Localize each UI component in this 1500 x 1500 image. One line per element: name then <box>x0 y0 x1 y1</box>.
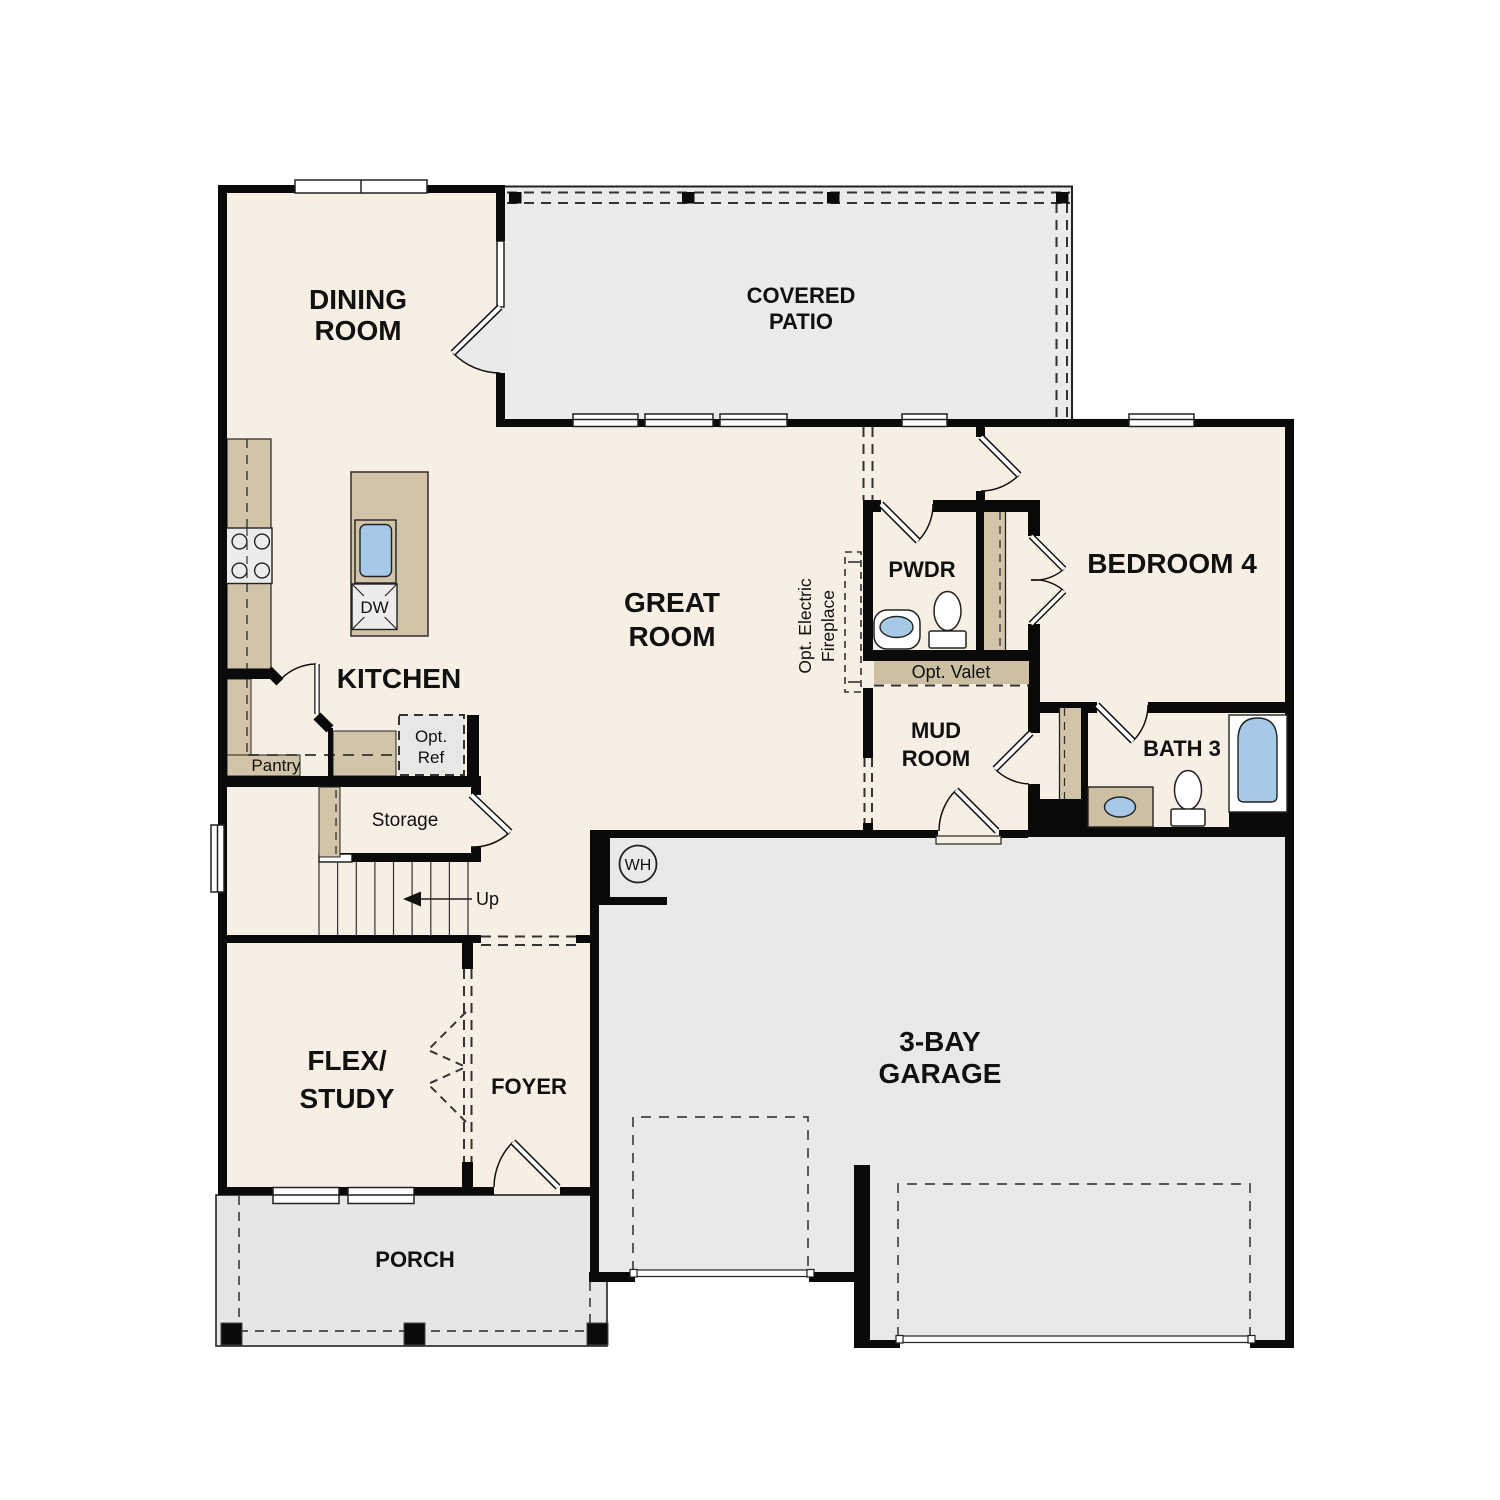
svg-text:Pantry: Pantry <box>251 756 301 775</box>
svg-text:PORCH: PORCH <box>375 1247 454 1272</box>
svg-text:PATIO: PATIO <box>769 309 833 334</box>
svg-text:DW: DW <box>360 598 388 617</box>
svg-text:BATH 3: BATH 3 <box>1143 736 1221 761</box>
svg-text:3-BAY: 3-BAY <box>899 1026 981 1057</box>
svg-text:Ref: Ref <box>418 748 445 767</box>
svg-text:FOYER: FOYER <box>491 1074 567 1099</box>
svg-text:Opt. Valet: Opt. Valet <box>912 662 991 682</box>
svg-text:COVERED: COVERED <box>747 283 856 308</box>
svg-text:WH: WH <box>625 857 652 874</box>
svg-text:PWDR: PWDR <box>888 557 955 582</box>
svg-text:GREAT: GREAT <box>624 587 720 618</box>
svg-text:Fireplace: Fireplace <box>818 590 838 662</box>
svg-text:Up: Up <box>476 889 499 909</box>
svg-text:Storage: Storage <box>372 810 439 831</box>
svg-text:STUDY: STUDY <box>300 1083 395 1114</box>
svg-text:MUD: MUD <box>911 718 961 743</box>
svg-text:GARAGE: GARAGE <box>879 1058 1002 1089</box>
svg-text:ROOM: ROOM <box>628 621 715 652</box>
svg-text:ROOM: ROOM <box>314 315 401 346</box>
svg-text:KITCHEN: KITCHEN <box>337 663 461 694</box>
svg-text:BEDROOM 4: BEDROOM 4 <box>1087 548 1257 579</box>
svg-text:DINING: DINING <box>309 284 407 315</box>
svg-text:ROOM: ROOM <box>902 746 970 771</box>
svg-text:FLEX/: FLEX/ <box>307 1045 387 1076</box>
svg-text:Opt. Electric: Opt. Electric <box>795 578 815 674</box>
svg-text:Opt.: Opt. <box>415 727 447 746</box>
